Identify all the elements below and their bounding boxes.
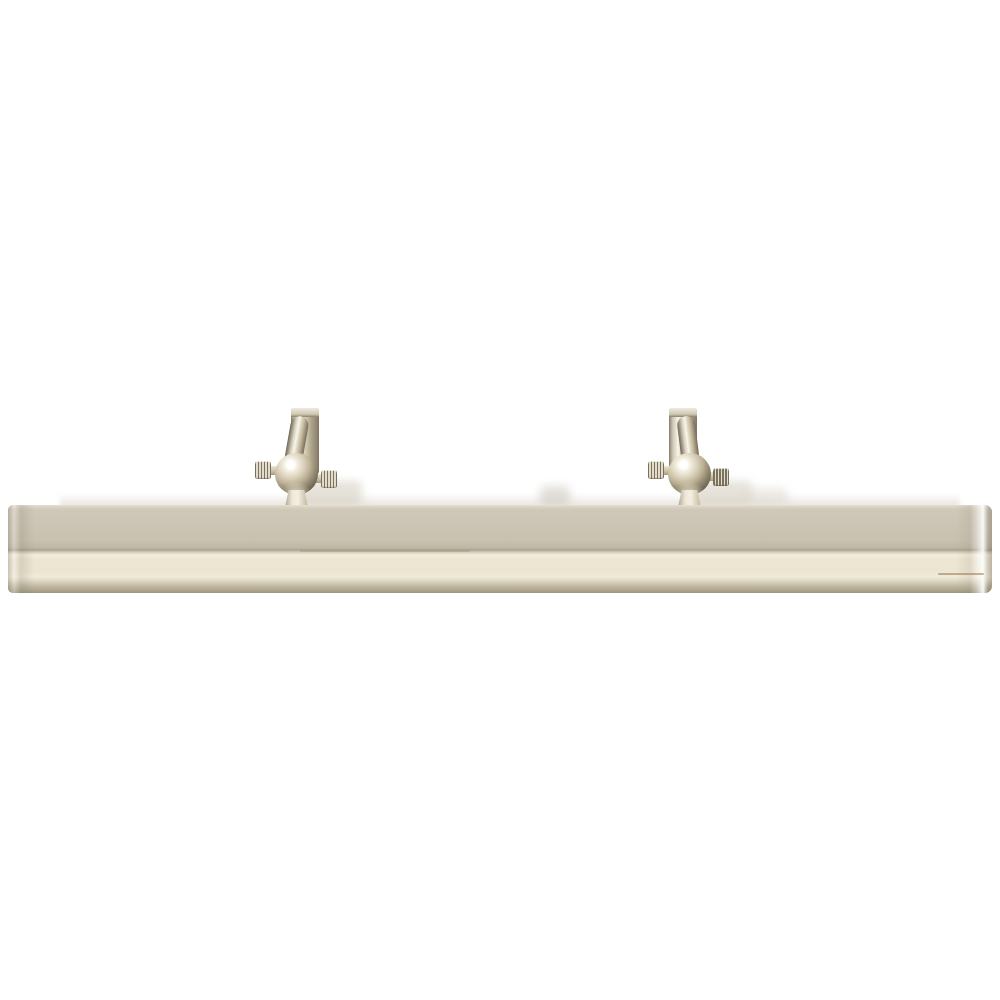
right-arm-ball-joint <box>668 453 711 495</box>
right-arm-left-thumbscrew <box>648 461 664 479</box>
left-arm-left-thumbscrew <box>255 461 271 479</box>
shade-bar <box>8 505 992 593</box>
shade-reflection-line <box>938 573 984 575</box>
reflection-haze <box>540 486 570 505</box>
product-photo: Product photo on a plain white backgroun… <box>0 0 1000 1000</box>
left-arm-ball-joint <box>275 453 318 495</box>
shade-reflection-line <box>300 550 470 552</box>
bracket-cap <box>291 408 319 417</box>
left-arm-right-thumbscrew <box>321 470 337 488</box>
reflection-haze <box>748 488 788 504</box>
right-arm-right-thumbscrew <box>713 468 729 486</box>
